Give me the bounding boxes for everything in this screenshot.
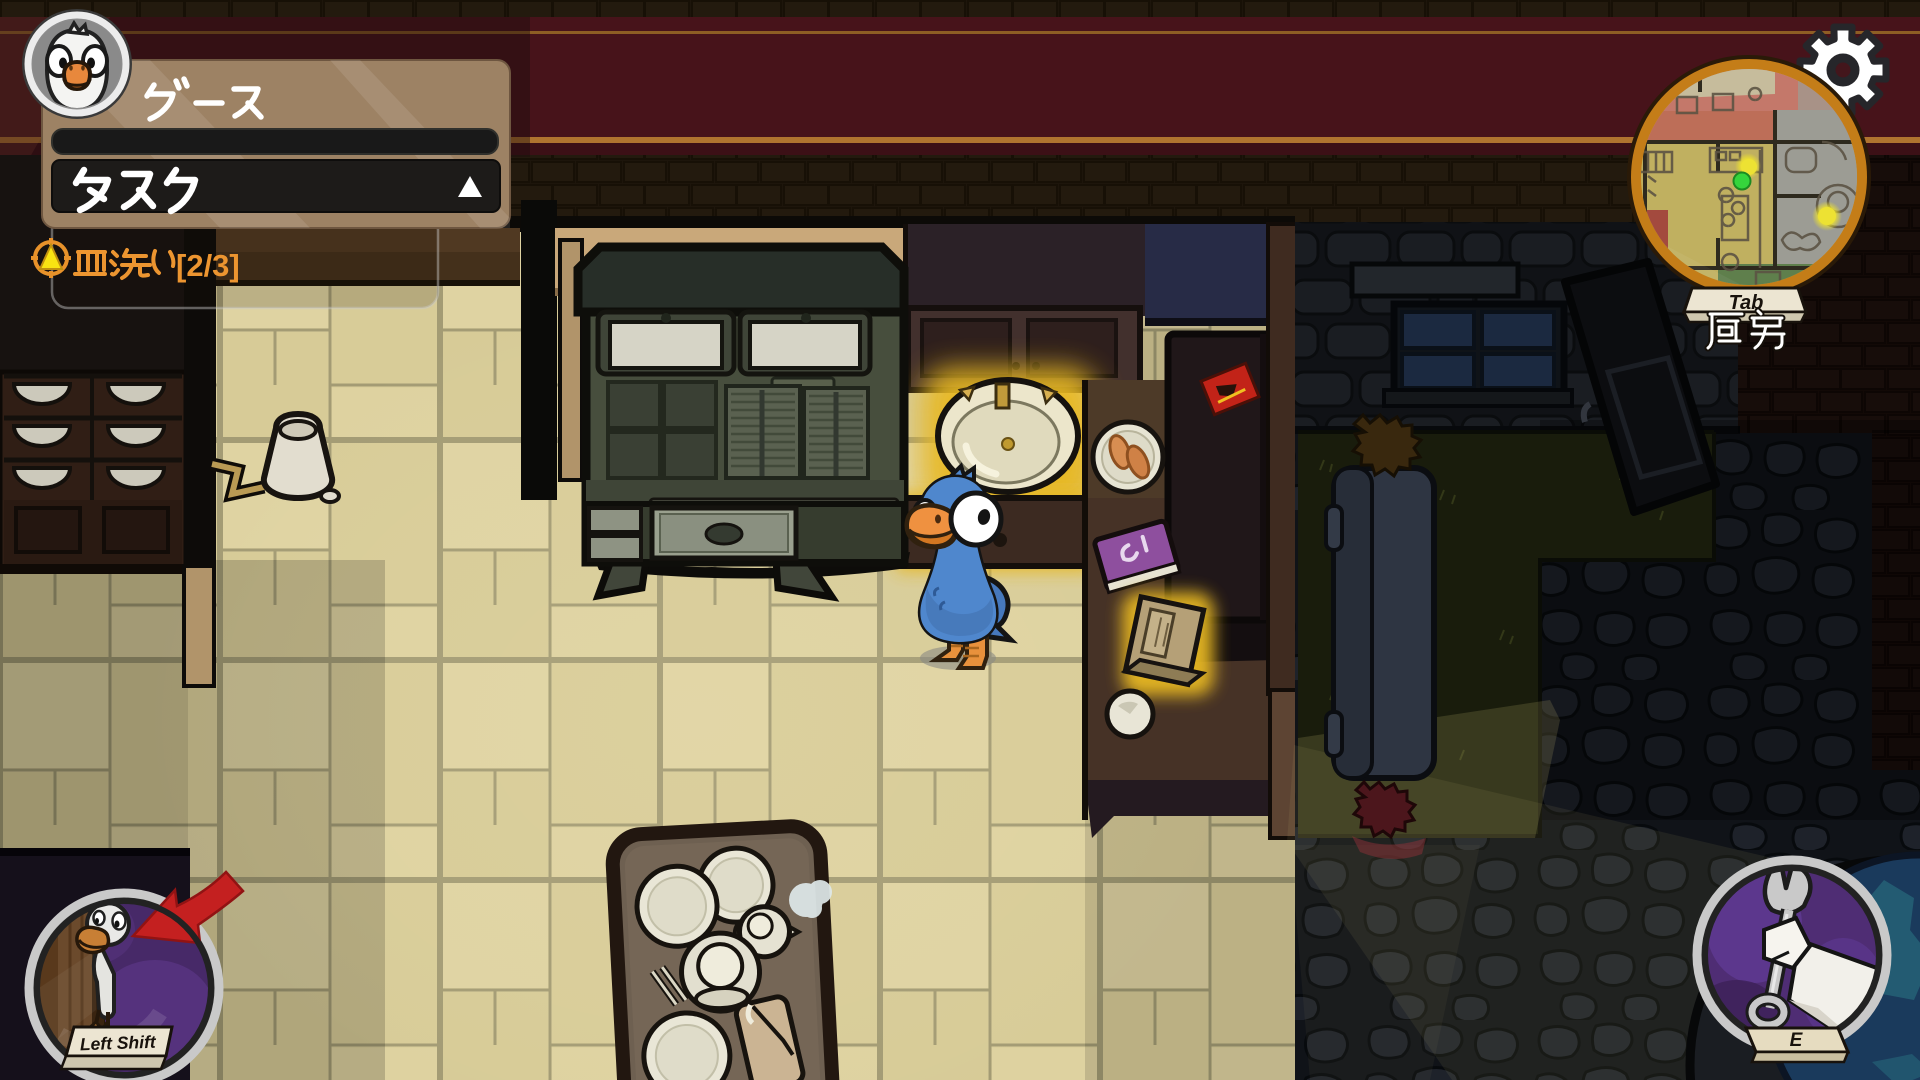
- svg-text:E: E: [1790, 1030, 1804, 1051]
- svg-text:Left Shift: Left Shift: [80, 1032, 158, 1055]
- svg-text:[2/3]: [2/3]: [176, 248, 240, 283]
